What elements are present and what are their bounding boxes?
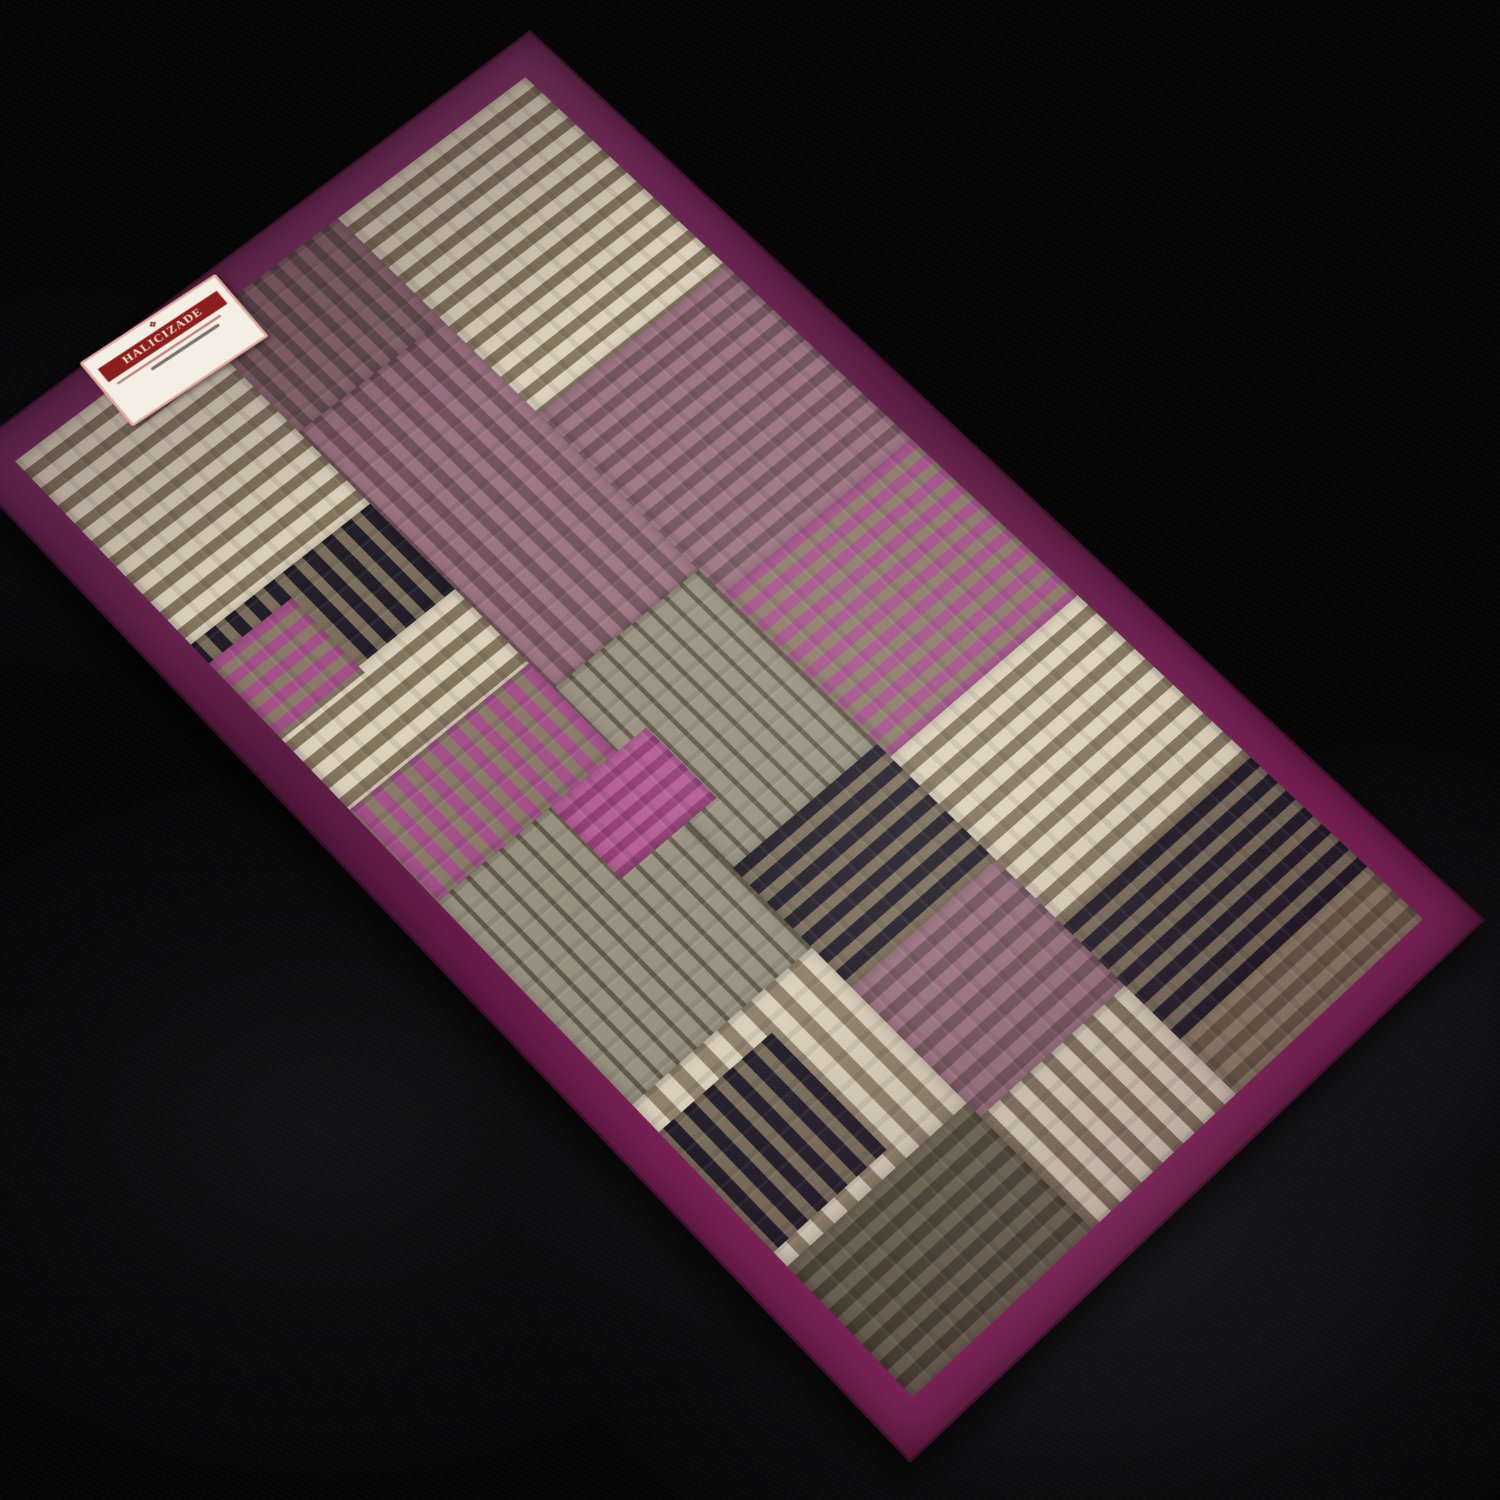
photo-backdrop: ❖ HALICIZADE (0, 0, 1500, 1500)
area-rug: ❖ HALICIZADE (0, 30, 1485, 1463)
brand-name: HALICIZADE (98, 291, 228, 383)
rug-field (15, 77, 1423, 1397)
